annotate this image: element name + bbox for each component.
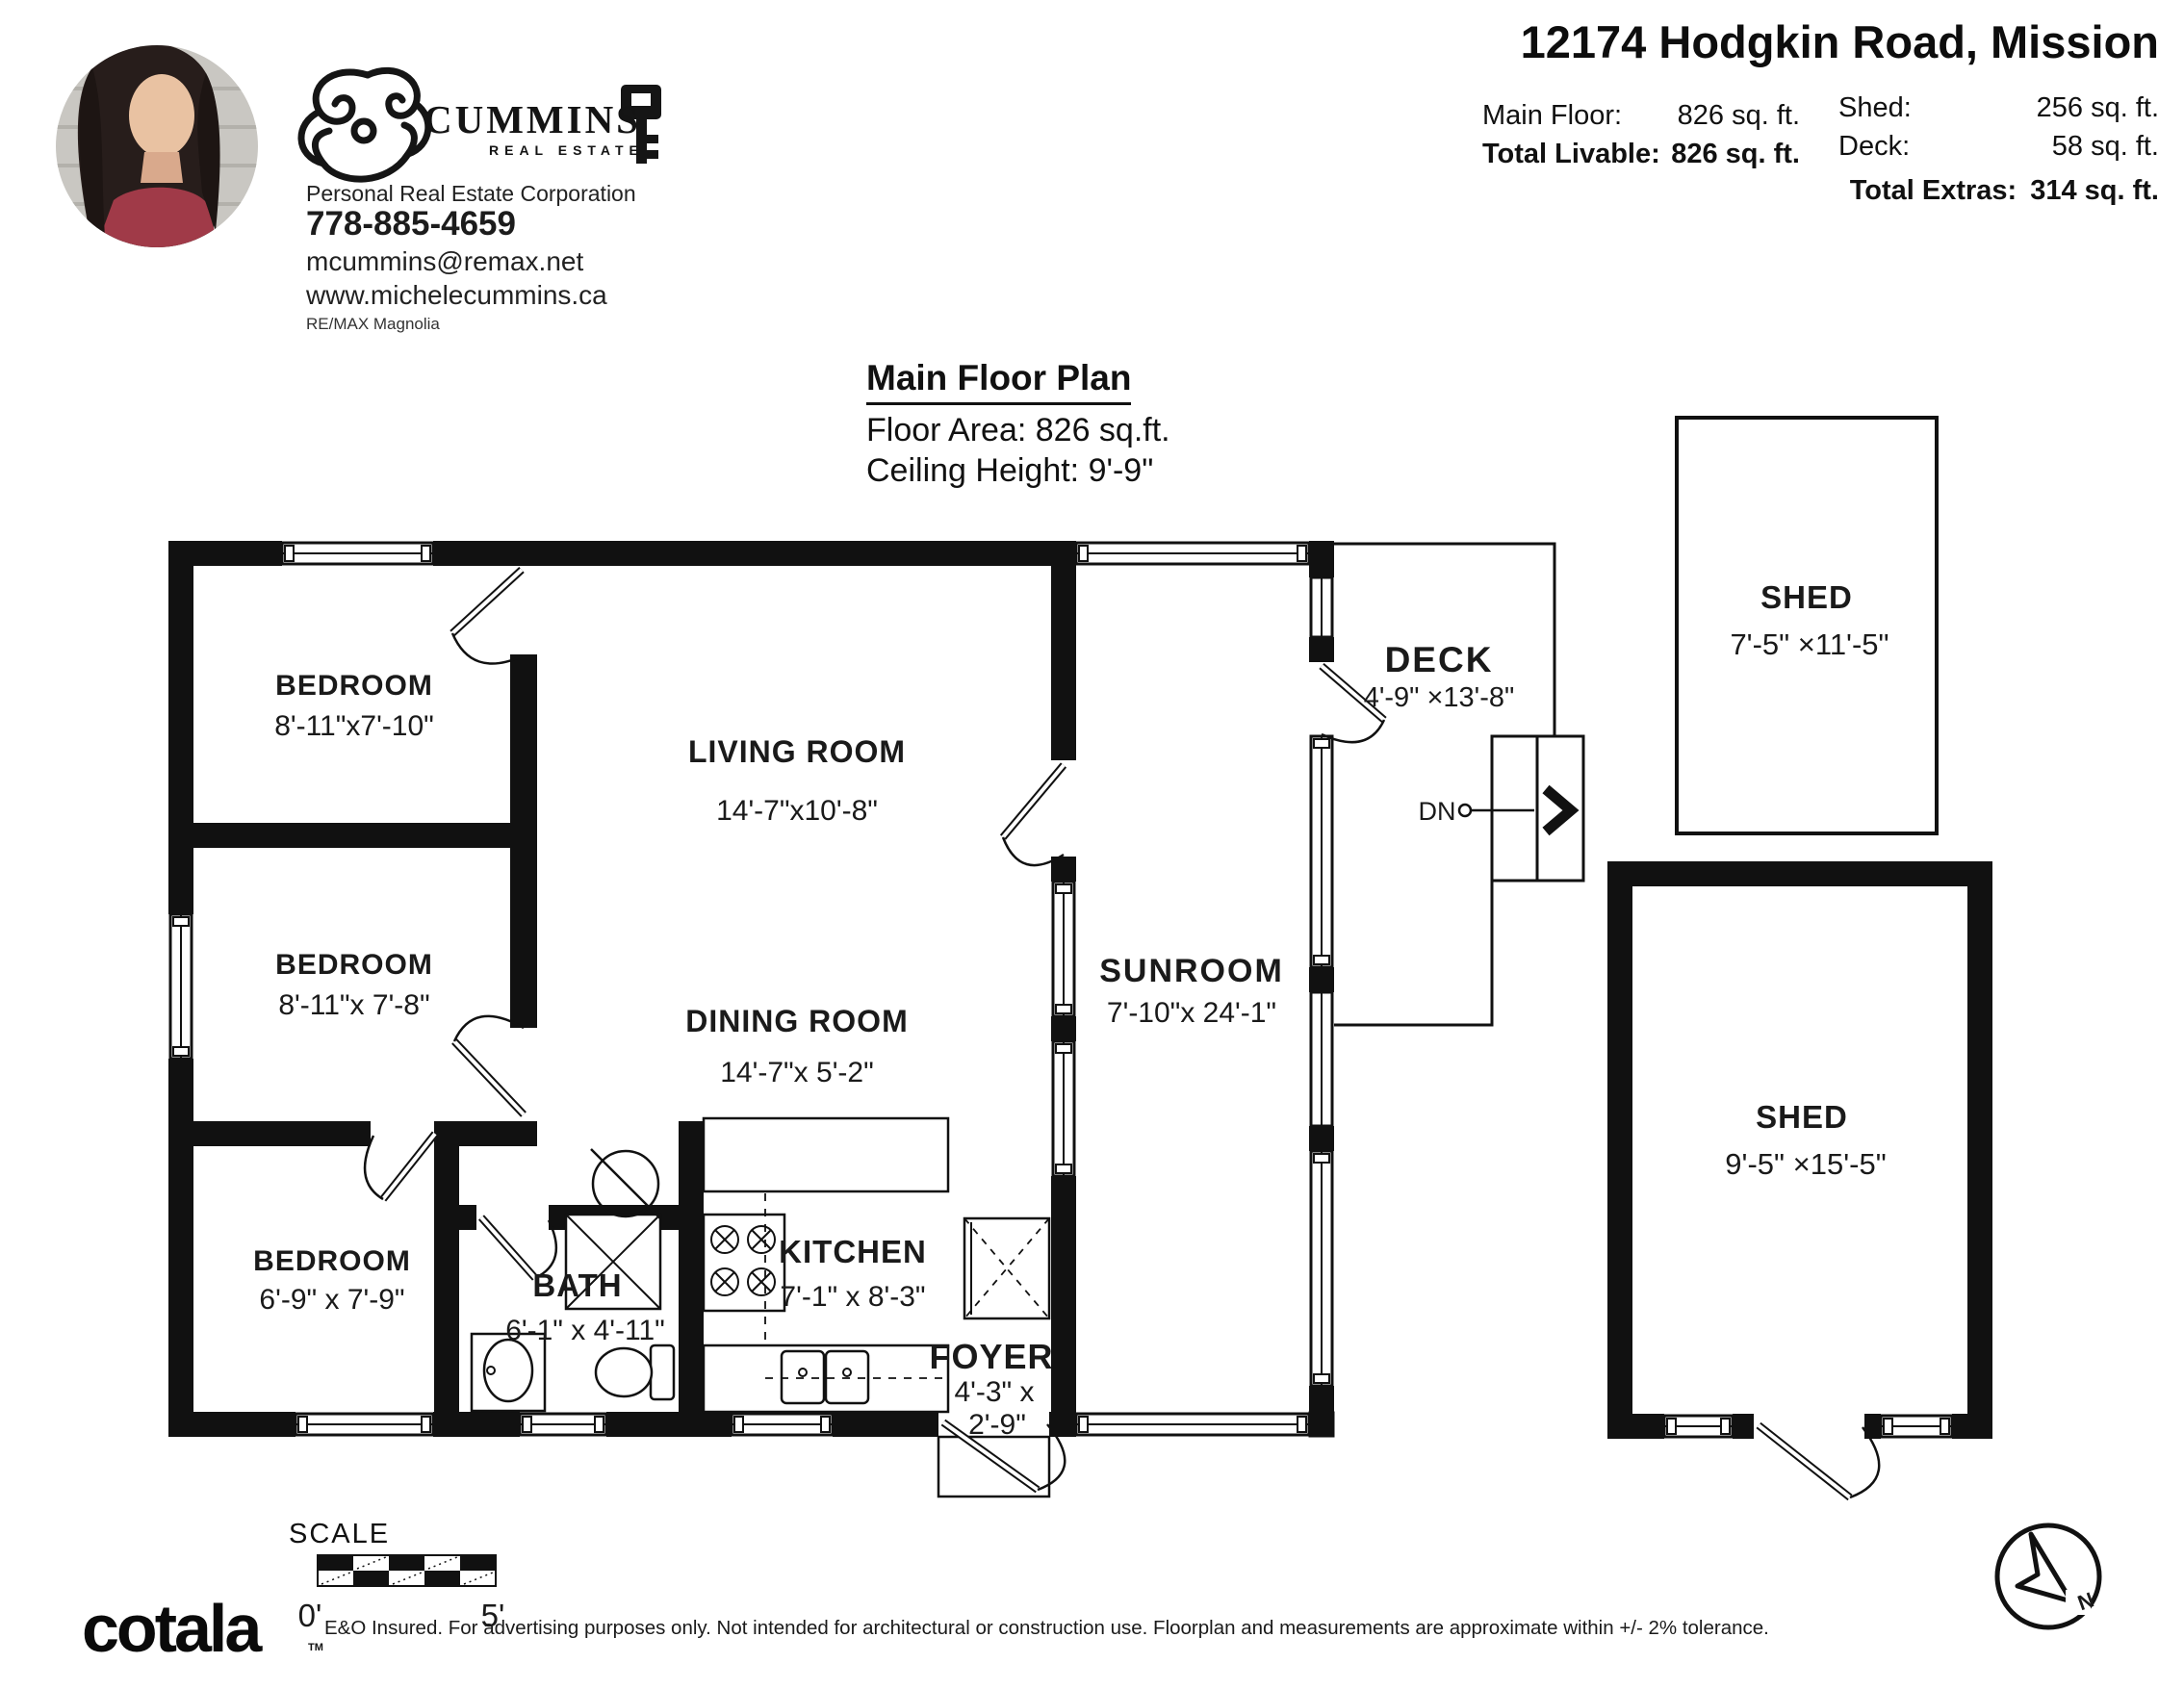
deck-label: DECK bbox=[1385, 640, 1494, 679]
plan-ceiling-height: Ceiling Height: 9'-9" bbox=[866, 452, 1153, 490]
shed1-dims: 7'-5" ×11'-5" bbox=[1730, 627, 1889, 661]
stats-right-column: Shed: 256 sq. ft. Deck: 58 sq. ft. Total… bbox=[1838, 92, 2159, 207]
living-dims: 14'-7"x10'-8" bbox=[716, 795, 878, 827]
agent-email: mcummins@remax.net bbox=[306, 246, 583, 277]
bedroom1-dims: 8'-11"x7'-10" bbox=[274, 710, 434, 742]
foyer-dims1: 4'-3" x bbox=[954, 1376, 1034, 1408]
shed1-label: SHED bbox=[1760, 579, 1853, 615]
shed2-label: SHED bbox=[1756, 1099, 1848, 1135]
brand-flourish-icon bbox=[301, 70, 428, 179]
brand-subtitle: REAL ESTATE bbox=[489, 142, 644, 158]
agent-phone: 778-885-4659 bbox=[306, 205, 516, 243]
stairs-down bbox=[1459, 789, 1571, 832]
deck-outline bbox=[1334, 544, 1583, 1025]
plan-title: Main Floor Plan bbox=[866, 358, 1131, 405]
sunroom-label: SUNROOM bbox=[1099, 953, 1284, 989]
shed1-outline bbox=[1677, 418, 1937, 833]
living-label: LIVING ROOM bbox=[688, 734, 906, 769]
shed2-dims: 9'-5" ×15'-5" bbox=[1725, 1147, 1886, 1181]
bedroom1-label: BEDROOM bbox=[275, 670, 433, 702]
cotala-logo: cotala bbox=[82, 1590, 259, 1667]
counter-top bbox=[704, 1118, 948, 1191]
face bbox=[129, 74, 194, 157]
compass: N bbox=[1997, 1525, 2099, 1627]
kitchen-dims: 7'-1" x 8'-3" bbox=[780, 1281, 925, 1313]
bedroom2-dims: 8'-11"x 7'-8" bbox=[278, 989, 429, 1021]
stat-deck: Deck: 58 sq. ft. bbox=[1838, 131, 2159, 163]
agent-website: www.michelecummins.ca bbox=[306, 280, 607, 311]
shed2-windows bbox=[1664, 1416, 1952, 1437]
north-arrow-icon bbox=[2017, 1534, 2071, 1601]
page-title: 12174 Hodgkin Road, Mission bbox=[1521, 15, 2159, 68]
brand-name: CUMMINS bbox=[424, 96, 641, 142]
faucet bbox=[487, 1367, 495, 1374]
agent-brokerage: RE/MAX Magnolia bbox=[306, 315, 440, 334]
agent-photo bbox=[56, 42, 258, 247]
stat-main-floor: Main Floor: 826 sq. ft. bbox=[1482, 100, 1800, 132]
bath-dims: 6'-1" x 4'-11" bbox=[505, 1315, 665, 1346]
floorplan-page: BEDROOM 8'-11"x7'-10" BEDROOM 8'-11"x 7'… bbox=[0, 0, 2184, 1689]
stat-total-extras: Total Extras: 314 sq. ft. bbox=[1838, 175, 2159, 207]
stat-total-livable: Total Livable: 826 sq. ft. bbox=[1482, 139, 1800, 170]
neck bbox=[141, 152, 183, 183]
bedroom2-label: BEDROOM bbox=[275, 949, 433, 981]
dn-label: DN bbox=[1419, 797, 1456, 826]
sunroom-dims: 7'-10"x 24'-1" bbox=[1107, 997, 1276, 1029]
bedroom3-dims: 6'-9" x 7'-9" bbox=[259, 1284, 404, 1316]
stat-shed: Shed: 256 sq. ft. bbox=[1838, 92, 2159, 124]
toilet-tank bbox=[651, 1345, 674, 1399]
foyer-closet bbox=[964, 1218, 1049, 1318]
foyer-label: FOYER bbox=[929, 1337, 1053, 1376]
agent-title: Personal Real Estate Corporation bbox=[306, 181, 636, 207]
stats-left-column: Main Floor: 826 sq. ft. Total Livable: 8… bbox=[1482, 100, 1800, 170]
kitchen-label: KITCHEN bbox=[779, 1234, 927, 1269]
foyer-dims2: 2'-9" bbox=[968, 1409, 1026, 1441]
scale-start: 0' bbox=[298, 1598, 322, 1633]
bath-label: BATH bbox=[532, 1267, 622, 1303]
dining-dims: 14'-7"x 5'-2" bbox=[720, 1057, 874, 1088]
bedroom3-label: BEDROOM bbox=[253, 1245, 411, 1277]
down-arrow-icon bbox=[1546, 789, 1571, 832]
disclaimer-text: E&O Insured. For advertising purposes on… bbox=[324, 1617, 1769, 1640]
shed2-door bbox=[1759, 1425, 1879, 1497]
cotala-tm: TM bbox=[308, 1642, 323, 1653]
deck-dims: 4'-9" ×13'-8" bbox=[1364, 682, 1515, 713]
toilet-bowl bbox=[596, 1348, 652, 1396]
plan-floor-area: Floor Area: 826 sq.ft. bbox=[866, 412, 1170, 449]
scale-label: SCALE bbox=[289, 1519, 390, 1550]
dining-label: DINING ROOM bbox=[685, 1004, 908, 1038]
